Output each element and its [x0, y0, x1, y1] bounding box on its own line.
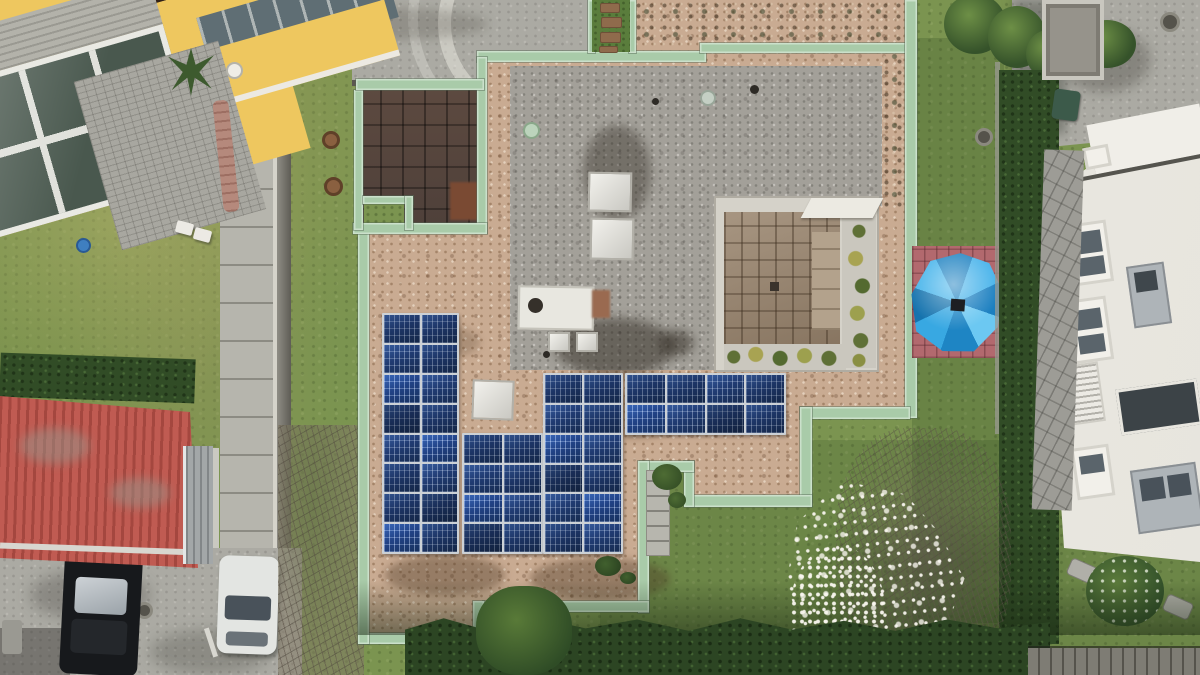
roof-border-garden-top — [632, 0, 907, 46]
roof-border-garden-right — [880, 45, 907, 207]
umbrella-pole — [950, 299, 965, 312]
car-windshield — [74, 577, 128, 616]
red-garage-roof — [0, 388, 198, 572]
solar-panel — [384, 494, 420, 522]
solar-panel — [422, 524, 458, 552]
roof-drain — [543, 351, 550, 358]
solar-array-west — [382, 313, 459, 554]
stepping-stone — [601, 17, 622, 28]
copper-edge — [690, 495, 812, 507]
brick-debris — [592, 290, 610, 318]
bin-enclosure — [1042, 0, 1104, 80]
villa-window — [1071, 444, 1116, 501]
tree-stump — [324, 177, 343, 196]
copper-edge — [356, 79, 484, 90]
courtyard — [714, 196, 879, 372]
villa-window — [1130, 462, 1200, 535]
solar-panel — [584, 435, 621, 463]
solar-panel — [384, 435, 420, 463]
roof-plant — [620, 572, 636, 584]
solar-panel — [667, 405, 705, 433]
roof-gutter — [0, 543, 198, 556]
solar-panel — [504, 435, 542, 463]
wooden-deck — [1028, 648, 1200, 675]
solar-panel — [464, 495, 502, 523]
copper-edge — [800, 407, 910, 419]
skylight — [590, 218, 635, 261]
solar-panel — [464, 435, 502, 463]
solar-panel — [545, 524, 582, 552]
copper-edge — [700, 43, 917, 53]
solar-array-east — [625, 373, 786, 435]
hedge-above-garage — [0, 353, 196, 404]
solar-panel — [545, 494, 582, 522]
solar-panel — [545, 465, 582, 493]
solar-panel — [707, 375, 745, 403]
solar-panel — [584, 375, 621, 403]
black-car — [59, 552, 143, 675]
solar-panel — [504, 495, 542, 523]
solar-panel — [422, 375, 458, 403]
solar-panel — [584, 465, 621, 493]
patio-lamp — [226, 62, 243, 79]
car-windshield — [224, 595, 271, 621]
solar-panel — [627, 375, 665, 403]
solar-panel — [545, 405, 582, 433]
white-car — [216, 555, 279, 655]
solar-panel — [464, 524, 502, 552]
solar-panel — [584, 524, 621, 552]
aerial-photo — [0, 0, 1200, 675]
solar-panel — [422, 435, 458, 463]
solar-panel — [384, 405, 420, 433]
roof-drain — [652, 98, 659, 105]
skylight — [588, 172, 633, 213]
storage-box — [2, 620, 22, 654]
planter-right — [842, 216, 876, 368]
tree-stump — [322, 131, 340, 149]
roof-stain — [660, 330, 694, 356]
green-bin — [1051, 88, 1081, 121]
blue-garden-toy — [76, 238, 91, 253]
solar-panel — [746, 405, 784, 433]
copper-edge — [629, 0, 636, 53]
bare-shrubs — [278, 425, 364, 675]
roof-cap — [548, 332, 570, 352]
solar-panel — [627, 405, 665, 433]
vent-opening — [528, 298, 543, 313]
small-bush — [652, 464, 682, 490]
copper-edge — [354, 90, 363, 230]
solar-panel — [545, 375, 582, 403]
copper-edge — [405, 196, 413, 230]
solar-panel — [422, 315, 458, 343]
courtyard-drain — [770, 282, 779, 291]
white-canopy — [801, 198, 884, 218]
solar-panel — [384, 375, 420, 403]
roof-vent — [523, 122, 540, 139]
skylight — [471, 379, 514, 420]
planter-bottom — [724, 344, 846, 370]
solar-panel — [422, 494, 458, 522]
window — [150, 0, 210, 3]
moss-patch — [20, 428, 90, 464]
solar-panel — [667, 375, 705, 403]
solar-array-south — [543, 373, 623, 554]
roof-cap — [576, 332, 598, 352]
solar-panel — [545, 435, 582, 463]
manhole-cover — [1160, 12, 1180, 32]
stepping-stone — [600, 32, 621, 43]
roof-drain — [750, 85, 759, 94]
solar-panel — [504, 465, 542, 493]
solar-array-mid — [462, 433, 543, 554]
corner-bush — [476, 586, 572, 675]
solar-panel — [707, 405, 745, 433]
solar-panel — [504, 524, 542, 552]
rust-patch — [450, 182, 480, 220]
solar-panel — [584, 405, 621, 433]
small-bush — [668, 492, 686, 508]
stepping-stone — [600, 3, 620, 13]
solar-panel — [422, 464, 458, 492]
car-rear-window — [226, 631, 268, 646]
solar-panel — [746, 375, 784, 403]
courtyard-light-path — [812, 232, 840, 330]
roof-plant — [595, 556, 621, 576]
solar-panel — [422, 405, 458, 433]
solar-panel — [584, 494, 621, 522]
stepping-stone — [599, 46, 618, 53]
moss-patch — [110, 478, 170, 508]
solar-panel — [422, 345, 458, 373]
copper-edge — [800, 407, 812, 506]
solar-panel — [384, 345, 420, 373]
roof-vent — [700, 90, 716, 106]
solar-panel — [464, 465, 502, 493]
solar-panel — [384, 315, 420, 343]
car-roof — [70, 618, 128, 655]
lawn-manhole — [975, 128, 993, 146]
metal-roof-strip — [183, 446, 213, 564]
copper-edge — [353, 223, 487, 234]
solar-panel — [384, 464, 420, 492]
solar-panel — [384, 524, 420, 552]
